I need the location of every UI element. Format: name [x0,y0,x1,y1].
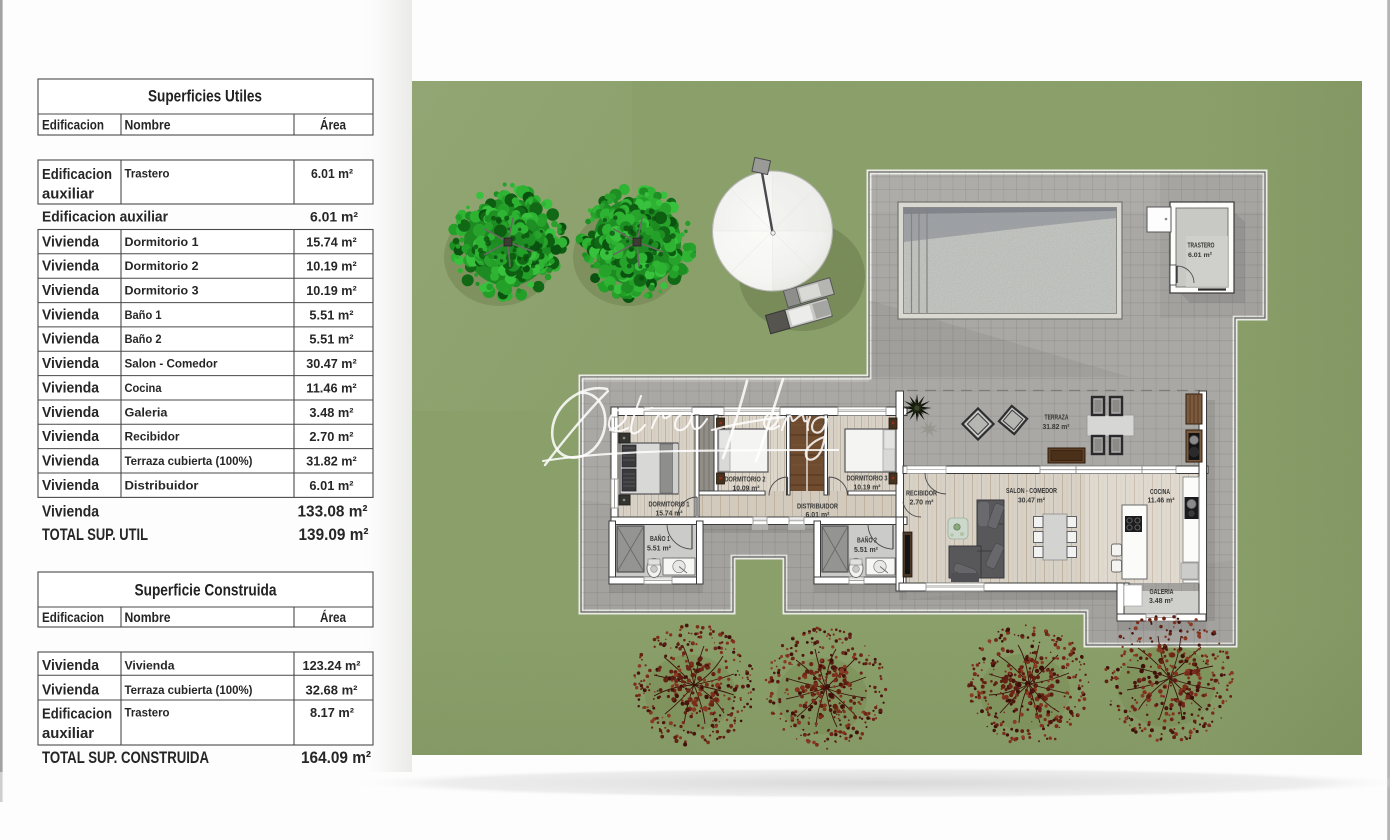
svg-text:Área: Área [320,609,346,625]
svg-text:5.51 m²: 5.51 m² [647,546,672,553]
svg-text:6.01 m²: 6.01 m² [311,167,353,181]
svg-text:123.24 m²: 123.24 m² [303,659,361,673]
svg-text:Edificacion: Edificacion [42,610,104,625]
svg-text:Cocina: Cocina [125,381,162,395]
svg-text:TRASTERO: TRASTERO [1188,241,1215,250]
svg-text:SALON - COMEDOR: SALON - COMEDOR [1006,486,1057,495]
svg-text:Superficies Utiles: Superficies Utiles [148,88,262,106]
svg-text:5.51 m²: 5.51 m² [854,547,879,554]
svg-text:Vivienda: Vivienda [42,307,100,323]
svg-text:164.09 m²: 164.09 m² [301,749,371,767]
svg-text:Vivienda: Vivienda [42,683,100,699]
svg-text:Vivienda: Vivienda [42,658,100,674]
svg-text:8.17 m²: 8.17 m² [310,706,354,720]
svg-text:Superficie Construida: Superficie Construida [135,582,278,600]
svg-text:10.19 m²: 10.19 m² [306,260,356,274]
svg-text:DISTRIBUIDOR: DISTRIBUIDOR [797,502,838,511]
svg-text:Vivienda: Vivienda [42,380,100,396]
svg-text:Edificacion: Edificacion [42,117,104,132]
svg-text:Vivienda: Vivienda [42,332,100,348]
svg-text:TOTAL SUP. UTIL: TOTAL SUP. UTIL [42,526,148,544]
svg-text:auxiliar: auxiliar [42,186,94,203]
svg-text:Nombre: Nombre [125,610,171,625]
svg-text:TERRAZA: TERRAZA [1045,413,1069,422]
svg-text:2.70 m²: 2.70 m² [910,500,935,507]
svg-text:Edificacion: Edificacion [42,166,112,183]
svg-text:6.01 m²: 6.01 m² [309,479,353,493]
svg-text:COCINA: COCINA [1150,487,1170,496]
svg-text:15.74 m²: 15.74 m² [306,235,356,249]
svg-text:32.68 m²: 32.68 m² [306,684,358,698]
svg-text:Área: Área [320,116,346,132]
svg-text:6.01 m²: 6.01 m² [1188,252,1213,259]
svg-text:10.09 m²: 10.09 m² [733,486,761,493]
svg-text:DORMITORIO 3: DORMITORIO 3 [847,474,888,483]
svg-text:11.46 m²: 11.46 m² [1148,498,1176,505]
svg-text:BAÑO 2: BAÑO 2 [857,536,877,545]
svg-text:Vivienda: Vivienda [42,405,100,421]
svg-text:Recibidor: Recibidor [125,430,180,444]
svg-text:31.82 m²: 31.82 m² [306,454,356,468]
svg-text:133.08 m²: 133.08 m² [298,503,368,520]
svg-text:Terraza cubierta (100%): Terraza cubierta (100%) [125,454,253,468]
svg-text:Vivienda: Vivienda [42,356,100,372]
svg-text:DORMITORIO 2: DORMITORIO 2 [725,475,766,484]
svg-text:RECIBIDOR: RECIBIDOR [906,489,937,498]
svg-text:Edificacion auxiliar: Edificacion auxiliar [42,209,168,226]
svg-text:Vivienda: Vivienda [42,478,100,494]
svg-text:Edificacion: Edificacion [42,706,112,723]
svg-text:139.09 m²: 139.09 m² [299,526,369,544]
svg-text:30.47 m²: 30.47 m² [306,357,356,371]
svg-text:31.82 m²: 31.82 m² [1043,424,1071,431]
svg-text:Galeria: Galeria [125,405,168,419]
svg-text:Vivienda: Vivienda [42,283,100,299]
svg-text:Vivienda: Vivienda [42,259,100,275]
svg-text:Terraza cubierta (100%): Terraza cubierta (100%) [125,683,253,697]
svg-text:2.70 m²: 2.70 m² [309,430,353,444]
svg-text:10.19 m²: 10.19 m² [306,284,356,298]
svg-text:Vivienda: Vivienda [42,429,100,445]
svg-text:3.48 m²: 3.48 m² [309,406,353,420]
svg-text:5.51 m²: 5.51 m² [309,308,353,322]
svg-text:Salon - Comedor: Salon - Comedor [125,357,218,371]
svg-text:5.51 m²: 5.51 m² [309,333,353,347]
svg-text:Dormitorio 2: Dormitorio 2 [125,259,199,273]
svg-text:10.19 m²: 10.19 m² [854,485,882,492]
svg-text:Nombre: Nombre [125,117,171,132]
svg-text:Vivienda: Vivienda [42,503,99,520]
svg-text:30.47 m²: 30.47 m² [1018,498,1046,505]
svg-text:TOTAL SUP. CONSTRUIDA: TOTAL SUP. CONSTRUIDA [42,749,209,767]
svg-text:auxiliar: auxiliar [42,725,94,742]
svg-text:Vivienda: Vivienda [125,659,175,673]
svg-text:11.46 m²: 11.46 m² [306,381,356,395]
svg-text:Trastero: Trastero [125,706,170,720]
svg-text:Vivienda: Vivienda [42,234,100,250]
svg-text:Baño 1: Baño 1 [125,308,162,322]
svg-text:GALERIA: GALERIA [1150,587,1174,596]
svg-text:Vivienda: Vivienda [42,453,100,469]
svg-text:3.48 m²: 3.48 m² [1149,598,1174,605]
svg-text:Dormitorio 3: Dormitorio 3 [125,284,199,298]
svg-text:6.01 m²: 6.01 m² [310,210,359,225]
svg-text:Baño 2: Baño 2 [125,332,162,346]
svg-text:BAÑO 1: BAÑO 1 [650,534,670,543]
svg-text:Dormitorio 1: Dormitorio 1 [125,235,199,249]
svg-text:Trastero: Trastero [125,167,170,181]
svg-text:Distribuidor: Distribuidor [125,478,199,492]
svg-text:6.01 m²: 6.01 m² [806,512,831,519]
svg-text:15.74 m²: 15.74 m² [656,511,684,518]
svg-text:DORMITORIO 1: DORMITORIO 1 [649,500,690,509]
